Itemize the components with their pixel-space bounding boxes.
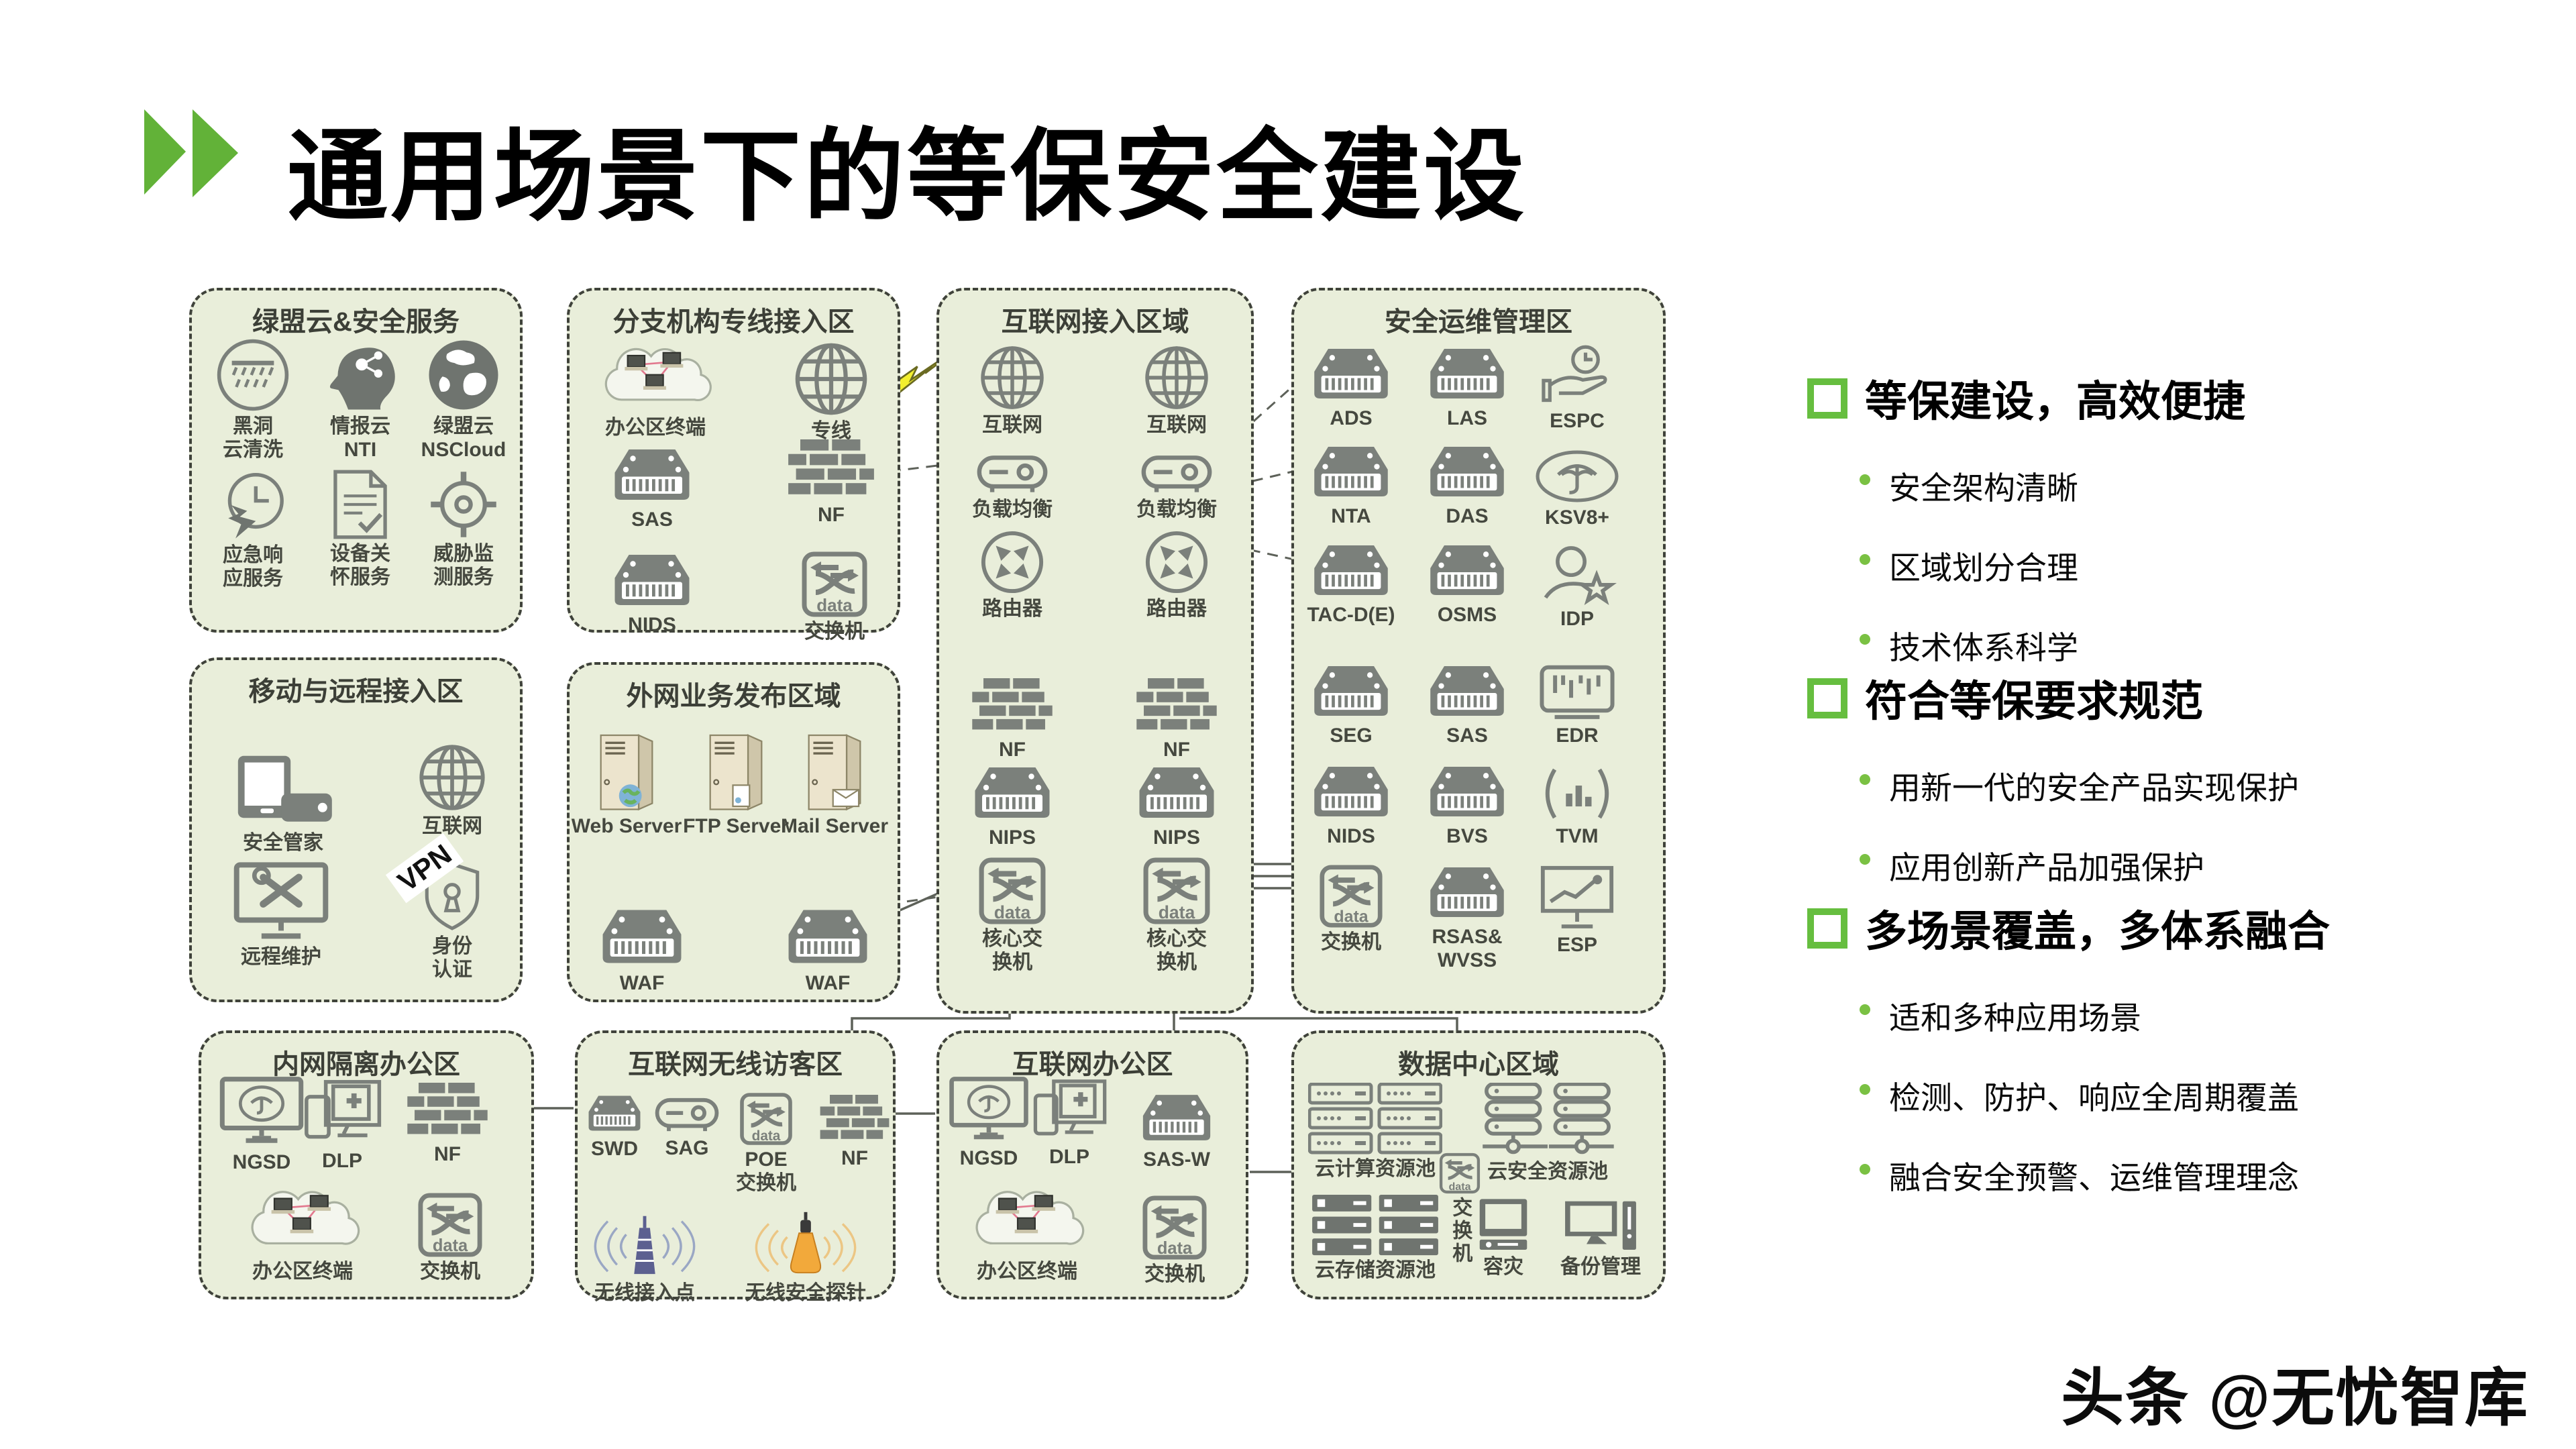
node-nips: NIPS (1120, 761, 1234, 850)
node-label: 设备关 怀服务 (330, 543, 390, 589)
node-label: Mail Server (781, 815, 888, 839)
node-waf: WAF (585, 904, 699, 996)
appliance-icon (589, 904, 695, 969)
monitor-umbrella-icon (217, 1076, 306, 1148)
firewall-icon (971, 678, 1054, 736)
green-square-icon (1807, 378, 1847, 419)
bullet-dot-icon (1860, 774, 1870, 785)
node-label: 路由器 (982, 598, 1042, 621)
dark-rack-icon (1309, 1195, 1441, 1256)
mail-server-icon (802, 729, 867, 812)
wireless-ap-icon (588, 1205, 701, 1279)
node-label: NF (999, 739, 1026, 762)
node-core-switch: 核心交 换机 (1120, 857, 1234, 974)
node-esp: ESP (1520, 864, 1634, 957)
zone-mobile-remote-access: 移动与远程接入区 安全管家 互联网 远程维护 身份 认证 (189, 657, 523, 1002)
rack-servers-icon (1308, 1083, 1442, 1155)
node-label: ESP (1557, 934, 1597, 957)
backup-monitor-icon (1562, 1197, 1639, 1253)
node-rsas-wvss: RSAS& WVSS (1410, 861, 1524, 972)
node-nta: NTA (1294, 441, 1408, 529)
node-label: 办公区终端 (252, 1260, 353, 1284)
node-label: NIPS (1153, 826, 1200, 850)
node-label: POE 交换机 (736, 1148, 796, 1195)
drum-servers-icon (1477, 1083, 1619, 1158)
bullet-text: 技术体系科学 (1889, 622, 2078, 668)
node-ngsd: NGSD (215, 1076, 309, 1175)
node-label: NIDS (1327, 825, 1375, 849)
node-device-care: 设备关 怀服务 (303, 469, 417, 589)
node-sag: SAG (650, 1097, 724, 1161)
node-label: SWD (591, 1138, 638, 1161)
wireless-probe-icon (749, 1205, 862, 1279)
appliance-icon (1417, 441, 1517, 502)
device-care-doc-icon (328, 469, 392, 540)
node-threat-monitoring: 威胁监 测服务 (407, 469, 521, 589)
node-sas: SAS (1410, 660, 1524, 748)
node-ftp-server: FTP Server (679, 729, 793, 839)
node-security-steward: 安全管家 (226, 754, 340, 855)
node-label: 容灾 (1483, 1256, 1523, 1279)
zone-nsfocus-cloud-services: 绿盟云&安全服务 黑洞 云清洗 情报云 NTI 绿盟云 NSCloud 应急响 … (189, 288, 523, 633)
node-label: NIDS (628, 614, 676, 637)
node-internet: 互联网 (955, 344, 1069, 437)
node-label: 备份管理 (1560, 1256, 1641, 1279)
node-switch: 交换机 (1294, 864, 1408, 955)
node-label: 办公区终端 (977, 1260, 1077, 1284)
appliance-icon (580, 1091, 649, 1135)
appliance-icon (1417, 539, 1517, 601)
node-cloud-security-pool: 云安全资源池 (1470, 1083, 1625, 1184)
node-core-switch: 核心交 换机 (955, 857, 1069, 974)
node-label: LAS (1447, 407, 1487, 431)
node-label: BVS (1446, 825, 1488, 849)
node-label: 情报云 NTI (330, 415, 390, 462)
office-terminals-cloud-icon (592, 332, 719, 414)
node-nf-firewall: NF (400, 1083, 494, 1167)
node-label: 安全管家 (243, 832, 323, 855)
bullet-text: 检测、防护、响应全周期覆盖 (1889, 1072, 2299, 1118)
node-ksv: KSV8+ (1520, 449, 1634, 530)
node-osms: OSMS (1410, 539, 1524, 627)
globe-icon (793, 341, 869, 417)
node-nf-firewall: NF (1120, 678, 1234, 762)
emergency-clock-icon (217, 469, 289, 541)
monitor-trend-icon (1538, 864, 1617, 931)
node-label: 交换机 (1321, 931, 1381, 955)
node-label: NGSD (233, 1151, 291, 1175)
web-server-icon (594, 729, 659, 812)
node-label: NGSD (960, 1147, 1018, 1171)
bullet-dot-icon (1860, 1084, 1870, 1095)
node-label: 互联网 (982, 414, 1042, 437)
node-label: SAS-W (1143, 1148, 1210, 1172)
globe-icon (1143, 344, 1210, 411)
zone-internet-office: 互联网办公区 NGSD DLP SAS-W 办公区终端 交换机 (936, 1030, 1248, 1299)
zone-title: 安全运维管理区 (1294, 300, 1663, 339)
appliance-icon (1301, 343, 1401, 405)
node-label: 负载均衡 (972, 498, 1053, 522)
node-label: FTP Server (683, 815, 789, 839)
node-label: WAF (620, 972, 665, 996)
appliance-icon (1301, 539, 1401, 601)
switch-icon (1319, 864, 1383, 928)
node-nids: NIDS (595, 549, 709, 637)
bullet-text: 用新一代的安全产品实现保护 (1889, 762, 2299, 808)
dlp-devices-icon (1030, 1076, 1109, 1143)
node-disaster-recovery: 容灾 (1463, 1197, 1544, 1279)
appliance-icon (775, 904, 881, 969)
node-label: Web Server (572, 815, 682, 839)
node-idp: IDP (1520, 542, 1634, 631)
appliance-icon (1301, 441, 1401, 502)
zone-internet-access: 互联网接入区域 互联网 互联网 负载均衡 负载均衡 路由器 路由器 NF NF … (936, 288, 1254, 1014)
brackets-chart-icon (1536, 765, 1618, 822)
load-balancer-icon (963, 454, 1062, 496)
node-switch: 交换机 (393, 1192, 507, 1284)
bullet-dot-icon (1860, 854, 1870, 865)
appliance-icon (962, 761, 1063, 824)
router-icon (1144, 529, 1210, 595)
node-ads: ADS (1294, 343, 1408, 431)
section-heading-text: 等保建设，高效便捷 (1865, 368, 2245, 429)
shower-cleaning-icon (215, 337, 290, 413)
node-dlp: DLP (1022, 1076, 1116, 1169)
node-label: 云存储资源池 (1315, 1259, 1436, 1283)
zone-datacenter: 数据中心区域 云计算资源池 云安全资源池 交换机 云存储资源池 容灾 备份管理 (1291, 1030, 1666, 1299)
node-label: 远程维护 (241, 946, 321, 969)
node-label: 无线安全探针 (745, 1282, 866, 1305)
ftp-server-icon (704, 729, 768, 812)
bullet-text: 区域划分合理 (1889, 542, 2078, 588)
node-office-terminals: 办公区终端 (592, 332, 719, 440)
load-balancer-icon (652, 1097, 722, 1134)
node-label: NF (434, 1143, 461, 1167)
firewall-icon (820, 1095, 890, 1144)
node-label: DLP (322, 1150, 362, 1173)
intel-head-icon (323, 337, 398, 413)
section-heading: 符合等保要求规范 (1807, 667, 2559, 729)
office-terminals-cloud-icon (963, 1175, 1091, 1258)
node-ngsd: NGSD (942, 1076, 1036, 1171)
node-waf: WAF (771, 904, 885, 996)
node-label: NIPS (989, 826, 1036, 850)
node-internet: 互联网 (1120, 344, 1234, 437)
node-dedicated-line: 专线 (774, 341, 888, 443)
appliance-icon (1301, 660, 1401, 722)
dashboard-icon (1537, 664, 1617, 722)
globe-icon (417, 743, 487, 812)
threat-crosshair-icon (428, 469, 499, 540)
section-heading-text: 多场景覆盖，多体系融合 (1865, 898, 2330, 959)
node-nf-firewall: NF (774, 439, 888, 527)
dlp-devices-icon (301, 1076, 384, 1147)
node-sas-w: SAS-W (1130, 1089, 1224, 1172)
zone-branch-dedicated-line: 分支机构专线接入区 办公区终端 专线 SAS NF NIDS 交换机 (567, 288, 900, 633)
appliance-icon (1301, 761, 1401, 822)
node-label: 应急响 应服务 (223, 544, 283, 590)
bullet-item: 区域划分合理 (1860, 542, 2559, 588)
node-office-terminals: 办公区终端 (239, 1175, 366, 1284)
node-intel-cloud: 情报云 NTI (303, 337, 417, 462)
node-load-balancer: 负载均衡 (1120, 454, 1234, 522)
node-blackhole-cleaning: 黑洞 云清洗 (196, 337, 310, 462)
node-label: SAG (665, 1137, 708, 1161)
node-label: IDP (1560, 608, 1594, 631)
green-square-icon (1807, 908, 1847, 949)
monitor-umbrella-icon (947, 1076, 1031, 1144)
node-edr: EDR (1520, 664, 1634, 748)
node-office-terminals: 办公区终端 (963, 1175, 1091, 1284)
bullet-item: 用新一代的安全产品实现保护 (1860, 762, 2559, 808)
office-terminals-cloud-icon (238, 1175, 367, 1258)
load-balancer-icon (1127, 454, 1226, 496)
node-load-balancer: 负载均衡 (955, 454, 1069, 522)
node-bvs: BVS (1410, 761, 1524, 849)
node-label: 办公区终端 (605, 417, 706, 440)
node-nscloud: 绿盟云 NSCloud (407, 337, 521, 462)
bullet-dot-icon (1860, 634, 1870, 645)
bullet-text: 安全架构清晰 (1889, 462, 2078, 508)
bullet-item: 适和多种应用场景 (1860, 992, 2559, 1038)
node-label: SAS (631, 508, 673, 532)
appliance-icon (1417, 660, 1517, 722)
bullet-item: 应用创新产品加强保护 (1860, 842, 2559, 888)
switch-icon (801, 551, 868, 618)
switch-icon (417, 1192, 483, 1258)
firewall-icon (406, 1083, 489, 1140)
appliance-icon (602, 549, 702, 611)
appliance-icon (602, 443, 702, 506)
hand-clock-icon (1536, 343, 1618, 407)
zone-security-ops: 安全运维管理区 ADS LAS ESPC NTA DAS KSV8+ TAC-D… (1291, 288, 1666, 1014)
zone-intranet-office: 内网隔离办公区 NGSD DLP NF 办公区终端 交换机 (199, 1030, 534, 1299)
zone-title: 互联网接入区域 (939, 300, 1251, 339)
node-dlp: DLP (295, 1076, 389, 1173)
node-label: 交换机 (420, 1260, 480, 1284)
bullet-item: 安全架构清晰 (1860, 462, 2559, 508)
tablet-phone-icon (229, 754, 337, 829)
node-label: 身份 认证 (432, 935, 472, 981)
bullet-dot-icon (1860, 1164, 1870, 1175)
node-label: OSMS (1438, 604, 1497, 627)
node-wireless-probe: 无线安全探针 (729, 1205, 883, 1305)
node-label: NF (1163, 739, 1190, 762)
firewall-icon (1135, 678, 1218, 736)
node-label: EDR (1556, 724, 1598, 748)
node-label: 负载均衡 (1136, 498, 1217, 522)
node-label: NTA (1331, 505, 1371, 529)
node-label: TAC-D(E) (1307, 604, 1395, 627)
node-nids: NIDS (1294, 761, 1408, 849)
node-nips: NIPS (955, 761, 1069, 850)
green-square-icon (1807, 678, 1847, 718)
firewall-icon (788, 439, 874, 501)
section-heading: 等保建设，高效便捷 (1807, 368, 2559, 429)
node-switch: 交换机 (1118, 1195, 1232, 1287)
node-label: SEG (1330, 724, 1372, 748)
node-web-server: Web Server (570, 729, 684, 839)
node-label: 交换机 (804, 621, 865, 644)
node-swd: SWD (578, 1091, 651, 1161)
node-label: KSV8+ (1545, 506, 1609, 530)
bullet-text: 应用创新产品加强保护 (1889, 842, 2204, 888)
node-label: NF (818, 504, 845, 527)
right-panel-section: 多场景覆盖，多体系融合 适和多种应用场景 检测、防护、响应全周期覆盖 融合安全预… (1807, 898, 2559, 1198)
node-label: 云安全资源池 (1487, 1161, 1608, 1184)
router-icon (979, 529, 1045, 595)
switch-icon (1142, 857, 1211, 925)
bullet-dot-icon (1860, 554, 1870, 565)
bullet-text: 融合安全预警、运维管理理念 (1889, 1152, 2299, 1198)
node-label: 无线接入点 (594, 1282, 695, 1305)
zone-wireless-guest: 互联网无线访客区 SWD SAG POE 交换机 NF 无线接入点 无线安全探针 (575, 1030, 896, 1299)
bullet-item: 检测、防护、响应全周期覆盖 (1860, 1072, 2559, 1118)
zone-title: 绿盟云&安全服务 (192, 300, 520, 339)
appliance-icon (1417, 343, 1517, 405)
node-tac: TAC-D(E) (1294, 539, 1408, 627)
node-router: 路由器 (1120, 529, 1234, 621)
node-label: 黑洞 云清洗 (223, 415, 283, 462)
appliance-icon (1126, 761, 1227, 824)
node-label: ESPC (1550, 410, 1605, 433)
section-heading: 多场景覆盖，多体系融合 (1807, 898, 2559, 959)
node-nf-firewall: NF (818, 1095, 892, 1171)
slide: data (0, 0, 2576, 1449)
node-label: 威胁监 测服务 (433, 543, 494, 589)
node-label: 绿盟云 NSCloud (421, 415, 506, 462)
node-label: RSAS& WVSS (1432, 926, 1502, 972)
node-label: 核心交 换机 (982, 928, 1042, 974)
node-switch: 交换机 (777, 551, 892, 644)
zone-title: 数据中心区域 (1294, 1042, 1663, 1081)
bullet-item: 技术体系科学 (1860, 622, 2559, 668)
globe-icon (979, 344, 1046, 411)
appliance-icon (1417, 861, 1517, 923)
monitor-tools-icon (231, 861, 331, 943)
node-label: 交换机 (1144, 1263, 1205, 1287)
node-label: 核心交 换机 (1146, 928, 1207, 974)
node-espc: ESPC (1520, 343, 1634, 433)
bullet-dot-icon (1860, 474, 1870, 485)
node-label: 互联网 (422, 815, 482, 839)
bullet-item: 融合安全预警、运维管理理念 (1860, 1152, 2559, 1198)
switch-icon (1142, 1195, 1207, 1260)
switch-icon (1439, 1152, 1481, 1194)
section-heading-text: 符合等保要求规范 (1865, 667, 2203, 729)
solid-globe-icon (426, 337, 501, 413)
node-wireless-ap: 无线接入点 (588, 1205, 702, 1305)
node-label: 互联网 (1146, 414, 1207, 437)
node-label: NF (841, 1147, 868, 1171)
zone-title: 外网业务发布区域 (570, 674, 898, 713)
watermark: 头条 @无忧智库 (2061, 1347, 2529, 1438)
node-seg: SEG (1294, 660, 1408, 748)
node-sas: SAS (595, 443, 709, 532)
zone-title: 移动与远程接入区 (192, 669, 520, 708)
zone-external-services: 外网业务发布区域 Web Server FTP Server Mail Serv… (567, 662, 900, 1002)
page-title: 通用场景下的等保安全建设 (287, 95, 1527, 241)
node-label: 路由器 (1146, 598, 1207, 621)
node-label: SAS (1446, 724, 1488, 748)
switch-icon (978, 857, 1046, 925)
node-label: DAS (1446, 505, 1488, 529)
node-label: 云计算资源池 (1315, 1158, 1436, 1181)
umbrella-ellipse-icon (1533, 449, 1621, 504)
person-star-icon (1537, 542, 1617, 605)
node-remote-maintenance: 远程维护 (224, 861, 338, 969)
node-label: ADS (1330, 407, 1372, 431)
node-nf-firewall: NF (955, 678, 1069, 762)
node-label: TVM (1556, 825, 1598, 849)
switch-icon (739, 1092, 793, 1146)
node-router: 路由器 (955, 529, 1069, 621)
node-las: LAS (1410, 343, 1524, 431)
bullet-dot-icon (1860, 1004, 1870, 1015)
node-label: WAF (806, 972, 851, 996)
node-emergency-response: 应急响 应服务 (196, 469, 310, 590)
node-tvm: TVM (1520, 765, 1634, 849)
node-internet: 互联网 (395, 743, 509, 839)
right-panel-section: 等保建设，高效便捷 安全架构清晰 区域划分合理 技术体系科学 (1807, 368, 2559, 668)
appliance-icon (1131, 1089, 1222, 1146)
title-chevrons-icon (144, 109, 245, 198)
node-mail-server: Mail Server (777, 729, 892, 839)
node-label: DLP (1049, 1146, 1089, 1169)
node-poe-switch: POE 交换机 (729, 1092, 803, 1195)
appliance-icon (1417, 761, 1517, 822)
bullet-text: 适和多种应用场景 (1889, 992, 2141, 1038)
node-backup-management: 备份管理 (1550, 1197, 1651, 1279)
zone-title: 互联网无线访客区 (578, 1042, 893, 1081)
node-das: DAS (1410, 441, 1524, 529)
node-cloud-storage-pool: 云存储资源池 (1298, 1195, 1452, 1283)
right-panel-section: 符合等保要求规范 用新一代的安全产品实现保护 应用创新产品加强保护 (1807, 667, 2559, 888)
desktop-pc-icon (1474, 1197, 1532, 1253)
